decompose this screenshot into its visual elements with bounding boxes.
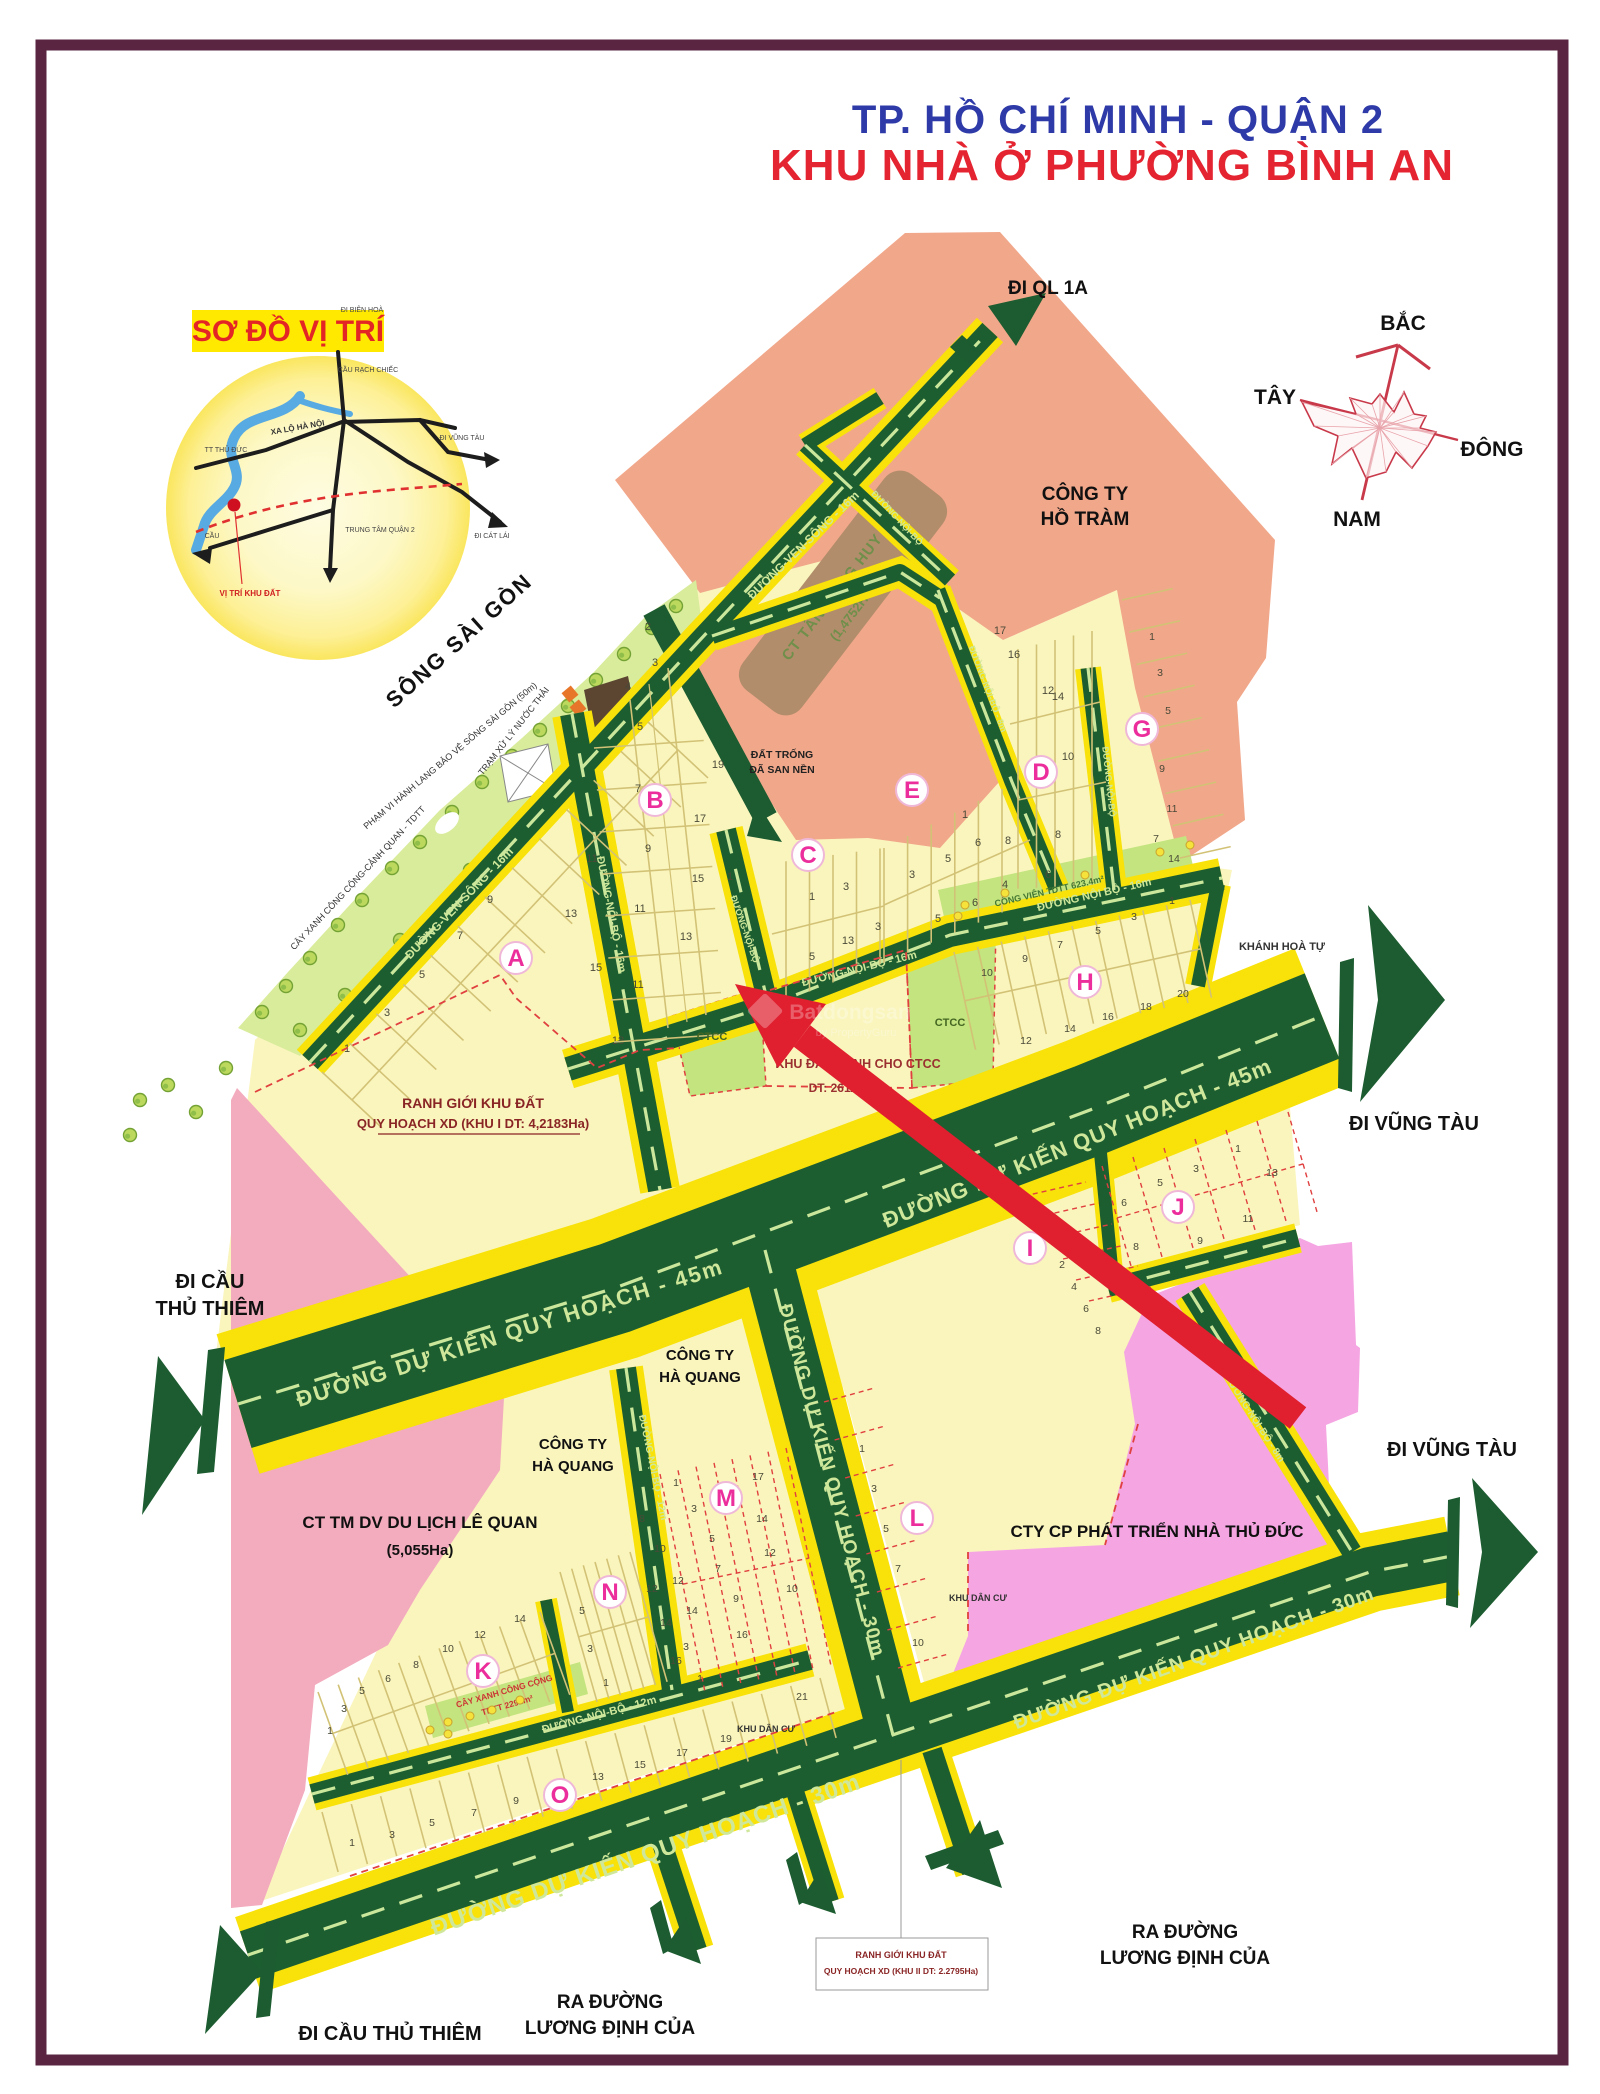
svg-text:1: 1 bbox=[727, 871, 733, 883]
svg-text:ĐẤT TRỐNG: ĐẤT TRỐNG bbox=[751, 747, 813, 761]
svg-text:9: 9 bbox=[487, 894, 493, 906]
svg-text:1: 1 bbox=[603, 1677, 609, 1689]
svg-text:ĐÔNG: ĐÔNG bbox=[1461, 437, 1524, 461]
svg-text:5: 5 bbox=[709, 1533, 715, 1545]
svg-text:ĐI VŨNG TÀU: ĐI VŨNG TÀU bbox=[440, 433, 485, 442]
svg-text:10: 10 bbox=[786, 1583, 798, 1595]
svg-text:5: 5 bbox=[1165, 705, 1171, 717]
svg-text:14: 14 bbox=[756, 1513, 768, 1525]
svg-text:KHU DÂN CƯ: KHU DÂN CƯ bbox=[737, 1723, 795, 1734]
svg-text:RA ĐƯỜNG: RA ĐƯỜNG bbox=[1132, 1921, 1238, 1943]
svg-text:1: 1 bbox=[673, 1477, 679, 1489]
svg-text:3: 3 bbox=[587, 1643, 593, 1655]
svg-text:5: 5 bbox=[419, 969, 425, 981]
svg-text:3: 3 bbox=[341, 1703, 347, 1715]
svg-text:6: 6 bbox=[972, 897, 978, 909]
svg-text:14: 14 bbox=[1064, 1023, 1076, 1035]
svg-text:9: 9 bbox=[1197, 1235, 1203, 1247]
svg-text:3: 3 bbox=[875, 921, 881, 933]
svg-text:3: 3 bbox=[1193, 1163, 1199, 1175]
svg-text:CTCC: CTCC bbox=[935, 1017, 966, 1029]
svg-text:5: 5 bbox=[935, 913, 941, 925]
svg-text:17: 17 bbox=[752, 1471, 764, 1483]
svg-text:8: 8 bbox=[413, 1659, 419, 1671]
svg-text:THỦ THIÊM: THỦ THIÊM bbox=[156, 1296, 265, 1320]
svg-text:5: 5 bbox=[429, 1817, 435, 1829]
svg-text:TP. HỒ CHÍ MINH - QUẬN 2: TP. HỒ CHÍ MINH - QUẬN 2 bbox=[852, 96, 1384, 142]
svg-text:(5,055Ha): (5,055Ha) bbox=[387, 1542, 454, 1559]
svg-text:21: 21 bbox=[796, 1691, 808, 1703]
svg-text:1: 1 bbox=[1169, 895, 1175, 907]
svg-text:1: 1 bbox=[349, 1837, 355, 1849]
svg-text:I: I bbox=[1027, 1235, 1034, 1262]
svg-text:1: 1 bbox=[809, 891, 815, 903]
svg-text:TÂY: TÂY bbox=[1254, 385, 1296, 409]
svg-text:16: 16 bbox=[670, 1655, 682, 1667]
svg-text:12: 12 bbox=[1020, 1035, 1032, 1047]
svg-text:14: 14 bbox=[514, 1613, 526, 1625]
svg-text:3: 3 bbox=[871, 1483, 877, 1495]
svg-text:8: 8 bbox=[1005, 835, 1011, 847]
svg-text:3: 3 bbox=[909, 869, 915, 881]
svg-text:3: 3 bbox=[1157, 667, 1163, 679]
svg-text:9: 9 bbox=[513, 1795, 519, 1807]
svg-text:HÀ QUANG: HÀ QUANG bbox=[532, 1458, 614, 1475]
svg-text:M: M bbox=[716, 1485, 736, 1512]
svg-text:20: 20 bbox=[1177, 988, 1189, 1000]
svg-text:7: 7 bbox=[1153, 833, 1159, 845]
svg-text:7: 7 bbox=[1057, 939, 1063, 951]
svg-text:12: 12 bbox=[646, 1583, 658, 1595]
svg-text:5: 5 bbox=[637, 721, 643, 733]
svg-text:18: 18 bbox=[1140, 1001, 1152, 1013]
svg-text:9: 9 bbox=[645, 843, 651, 855]
svg-text:16: 16 bbox=[1102, 1011, 1114, 1023]
svg-text:14: 14 bbox=[1168, 853, 1180, 865]
svg-text:17: 17 bbox=[994, 625, 1006, 637]
svg-text:D: D bbox=[1032, 759, 1049, 786]
svg-text:3: 3 bbox=[683, 1641, 689, 1653]
svg-text:8: 8 bbox=[1055, 829, 1061, 841]
svg-text:10: 10 bbox=[442, 1643, 454, 1655]
svg-text:2: 2 bbox=[1059, 1259, 1065, 1271]
svg-text:O: O bbox=[551, 1782, 570, 1809]
svg-text:CÔNG TY: CÔNG TY bbox=[1042, 483, 1129, 505]
svg-text:G: G bbox=[1133, 716, 1152, 743]
svg-text:14: 14 bbox=[1052, 691, 1064, 703]
svg-text:15: 15 bbox=[692, 873, 704, 885]
svg-text:11: 11 bbox=[1167, 803, 1178, 815]
svg-text:11: 11 bbox=[632, 979, 643, 991]
svg-text:5: 5 bbox=[579, 1605, 585, 1617]
svg-text:6: 6 bbox=[975, 837, 981, 849]
svg-text:BẮC: BẮC bbox=[1380, 311, 1426, 335]
svg-text:ĐI CẦU THỦ THIÊM: ĐI CẦU THỦ THIÊM bbox=[298, 2021, 481, 2045]
svg-text:15: 15 bbox=[634, 1759, 646, 1771]
svg-text:K: K bbox=[474, 1658, 492, 1685]
svg-text:ĐI QL 1A: ĐI QL 1A bbox=[1008, 278, 1088, 299]
svg-text:12: 12 bbox=[474, 1629, 486, 1641]
svg-text:ĐI CÁT LÁI: ĐI CÁT LÁI bbox=[474, 531, 509, 540]
svg-text:L: L bbox=[910, 1505, 925, 1532]
svg-text:3: 3 bbox=[652, 657, 658, 669]
svg-text:QUY HOẠCH XD (KHU I DT: 4,2183: QUY HOẠCH XD (KHU I DT: 4,2183Ha) bbox=[357, 1116, 589, 1131]
svg-text:RANH GIỚI KHU ĐẤT: RANH GIỚI KHU ĐẤT bbox=[402, 1094, 544, 1111]
svg-text:10: 10 bbox=[1062, 751, 1074, 763]
svg-text:1: 1 bbox=[1149, 631, 1155, 643]
svg-text:17: 17 bbox=[694, 813, 706, 825]
svg-text:13: 13 bbox=[592, 1771, 604, 1783]
svg-text:1: 1 bbox=[859, 1443, 865, 1455]
svg-text:7: 7 bbox=[895, 1563, 901, 1575]
svg-text:5: 5 bbox=[945, 853, 951, 865]
svg-text:13: 13 bbox=[680, 931, 692, 943]
svg-text:3: 3 bbox=[384, 1007, 390, 1019]
svg-text:8: 8 bbox=[639, 1513, 645, 1525]
svg-text:KHU NHÀ Ở PHƯỜNG BÌNH AN: KHU NHÀ Ở PHƯỜNG BÌNH AN bbox=[770, 139, 1454, 190]
svg-text:11: 11 bbox=[634, 903, 645, 915]
svg-text:1: 1 bbox=[327, 1725, 333, 1737]
svg-text:C: C bbox=[799, 842, 816, 869]
svg-text:CÔNG TY: CÔNG TY bbox=[539, 1435, 607, 1453]
svg-text:1: 1 bbox=[1235, 1143, 1241, 1155]
svg-text:13: 13 bbox=[565, 908, 577, 920]
svg-text:ĐI CẦU: ĐI CẦU bbox=[176, 1270, 245, 1293]
svg-text:16: 16 bbox=[1008, 649, 1020, 661]
svg-text:7: 7 bbox=[715, 1563, 721, 1575]
svg-text:RA ĐƯỜNG: RA ĐƯỜNG bbox=[557, 1991, 663, 2013]
svg-text:7: 7 bbox=[471, 1807, 477, 1819]
svg-text:3: 3 bbox=[389, 1829, 395, 1841]
svg-text:16: 16 bbox=[736, 1629, 748, 1641]
svg-text:9: 9 bbox=[1022, 953, 1028, 965]
svg-text:19: 19 bbox=[720, 1733, 732, 1745]
svg-text:LƯƠNG ĐỊNH CỦA: LƯƠNG ĐỊNH CỦA bbox=[525, 2017, 696, 2039]
svg-text:TT THỦ ĐỨC: TT THỦ ĐỨC bbox=[205, 445, 248, 454]
svg-text:6: 6 bbox=[385, 1673, 391, 1685]
svg-text:8: 8 bbox=[1133, 1241, 1139, 1253]
svg-text:8: 8 bbox=[1095, 1325, 1101, 1337]
svg-text:9: 9 bbox=[1159, 763, 1165, 775]
svg-text:KHU DÂN CƯ: KHU DÂN CƯ bbox=[949, 1592, 1007, 1603]
svg-text:11: 11 bbox=[586, 853, 597, 865]
svg-text:J: J bbox=[1171, 1194, 1184, 1221]
svg-text:H: H bbox=[1076, 969, 1093, 996]
svg-text:7: 7 bbox=[457, 930, 463, 942]
svg-text:12: 12 bbox=[672, 1575, 684, 1587]
svg-text:14: 14 bbox=[686, 1605, 698, 1617]
svg-text:ĐI VŨNG TÀU: ĐI VŨNG TÀU bbox=[1387, 1437, 1517, 1461]
svg-text:5: 5 bbox=[1157, 1177, 1163, 1189]
svg-text:3: 3 bbox=[691, 1503, 697, 1515]
svg-text:NAM: NAM bbox=[1333, 508, 1381, 531]
svg-text:ĐÃ SAN NỀN: ĐÃ SAN NỀN bbox=[749, 763, 814, 776]
svg-text:ĐI VŨNG TÀU: ĐI VŨNG TÀU bbox=[1349, 1111, 1479, 1135]
svg-text:TRUNG TÂM QUẬN 2: TRUNG TÂM QUẬN 2 bbox=[345, 525, 415, 534]
svg-text:6: 6 bbox=[1045, 869, 1051, 881]
svg-text:1: 1 bbox=[697, 1673, 703, 1685]
svg-text:by PropertyGuru: by PropertyGuru bbox=[816, 1027, 897, 1039]
svg-text:14: 14 bbox=[660, 1617, 672, 1629]
svg-text:13: 13 bbox=[1266, 1167, 1278, 1179]
svg-text:2: 2 bbox=[645, 621, 651, 633]
svg-text:VỊ TRÍ KHU ĐẤT: VỊ TRÍ KHU ĐẤT bbox=[220, 588, 281, 598]
svg-text:3: 3 bbox=[1131, 911, 1137, 923]
svg-text:B: B bbox=[646, 787, 663, 814]
svg-text:9: 9 bbox=[733, 1593, 739, 1605]
svg-text:QUY HOẠCH XD (KHU II DT: 2.279: QUY HOẠCH XD (KHU II DT: 2.2795Ha) bbox=[824, 1966, 978, 1976]
svg-text:4: 4 bbox=[1071, 1281, 1077, 1293]
svg-text:Batdongsan: Batdongsan bbox=[789, 1001, 910, 1024]
svg-text:10: 10 bbox=[912, 1637, 924, 1649]
svg-text:N: N bbox=[601, 1579, 618, 1606]
svg-text:E: E bbox=[904, 777, 920, 804]
svg-text:10: 10 bbox=[654, 1543, 666, 1555]
svg-text:17: 17 bbox=[676, 1747, 688, 1759]
svg-text:LƯƠNG ĐỊNH CỦA: LƯƠNG ĐỊNH CỦA bbox=[1100, 1947, 1271, 1969]
svg-text:15: 15 bbox=[590, 962, 602, 974]
svg-text:ĐI BIÊN HOÀ: ĐI BIÊN HOÀ bbox=[341, 305, 384, 314]
svg-text:1: 1 bbox=[962, 809, 968, 821]
svg-text:3: 3 bbox=[843, 881, 849, 893]
svg-text:12: 12 bbox=[764, 1547, 776, 1559]
svg-text:5: 5 bbox=[1095, 925, 1101, 937]
svg-text:CTCC: CTCC bbox=[697, 1031, 728, 1043]
svg-text:KHÁNH HOÀ TỰ: KHÁNH HOÀ TỰ bbox=[1239, 940, 1326, 953]
svg-text:SƠ ĐỒ VỊ TRÍ: SƠ ĐỒ VỊ TRÍ bbox=[192, 314, 385, 348]
svg-text:13: 13 bbox=[842, 935, 854, 947]
svg-text:5: 5 bbox=[359, 1685, 365, 1697]
svg-text:RANH GIỚI KHU ĐẤT: RANH GIỚI KHU ĐẤT bbox=[855, 1949, 947, 1960]
svg-text:6: 6 bbox=[1121, 1197, 1127, 1209]
svg-text:4: 4 bbox=[625, 681, 631, 693]
svg-text:5: 5 bbox=[883, 1523, 889, 1535]
svg-text:19: 19 bbox=[712, 759, 724, 771]
svg-text:CÔNG TY: CÔNG TY bbox=[666, 1346, 734, 1364]
svg-text:6: 6 bbox=[1083, 1303, 1089, 1315]
svg-text:5: 5 bbox=[809, 951, 815, 963]
svg-text:CT TM DV DU LỊCH LÊ QUAN: CT TM DV DU LỊCH LÊ QUAN bbox=[302, 1513, 537, 1532]
svg-text:11: 11 bbox=[1243, 1213, 1254, 1225]
svg-text:HÀ QUANG: HÀ QUANG bbox=[659, 1369, 741, 1386]
svg-text:HỒ TRÀM: HỒ TRÀM bbox=[1041, 508, 1130, 530]
svg-text:CTY CP PHÁT TRIỂN NHÀ THỦ ĐỨC: CTY CP PHÁT TRIỂN NHÀ THỦ ĐỨC bbox=[1010, 1522, 1303, 1541]
svg-text:A: A bbox=[507, 945, 524, 972]
svg-text:10: 10 bbox=[981, 967, 993, 979]
